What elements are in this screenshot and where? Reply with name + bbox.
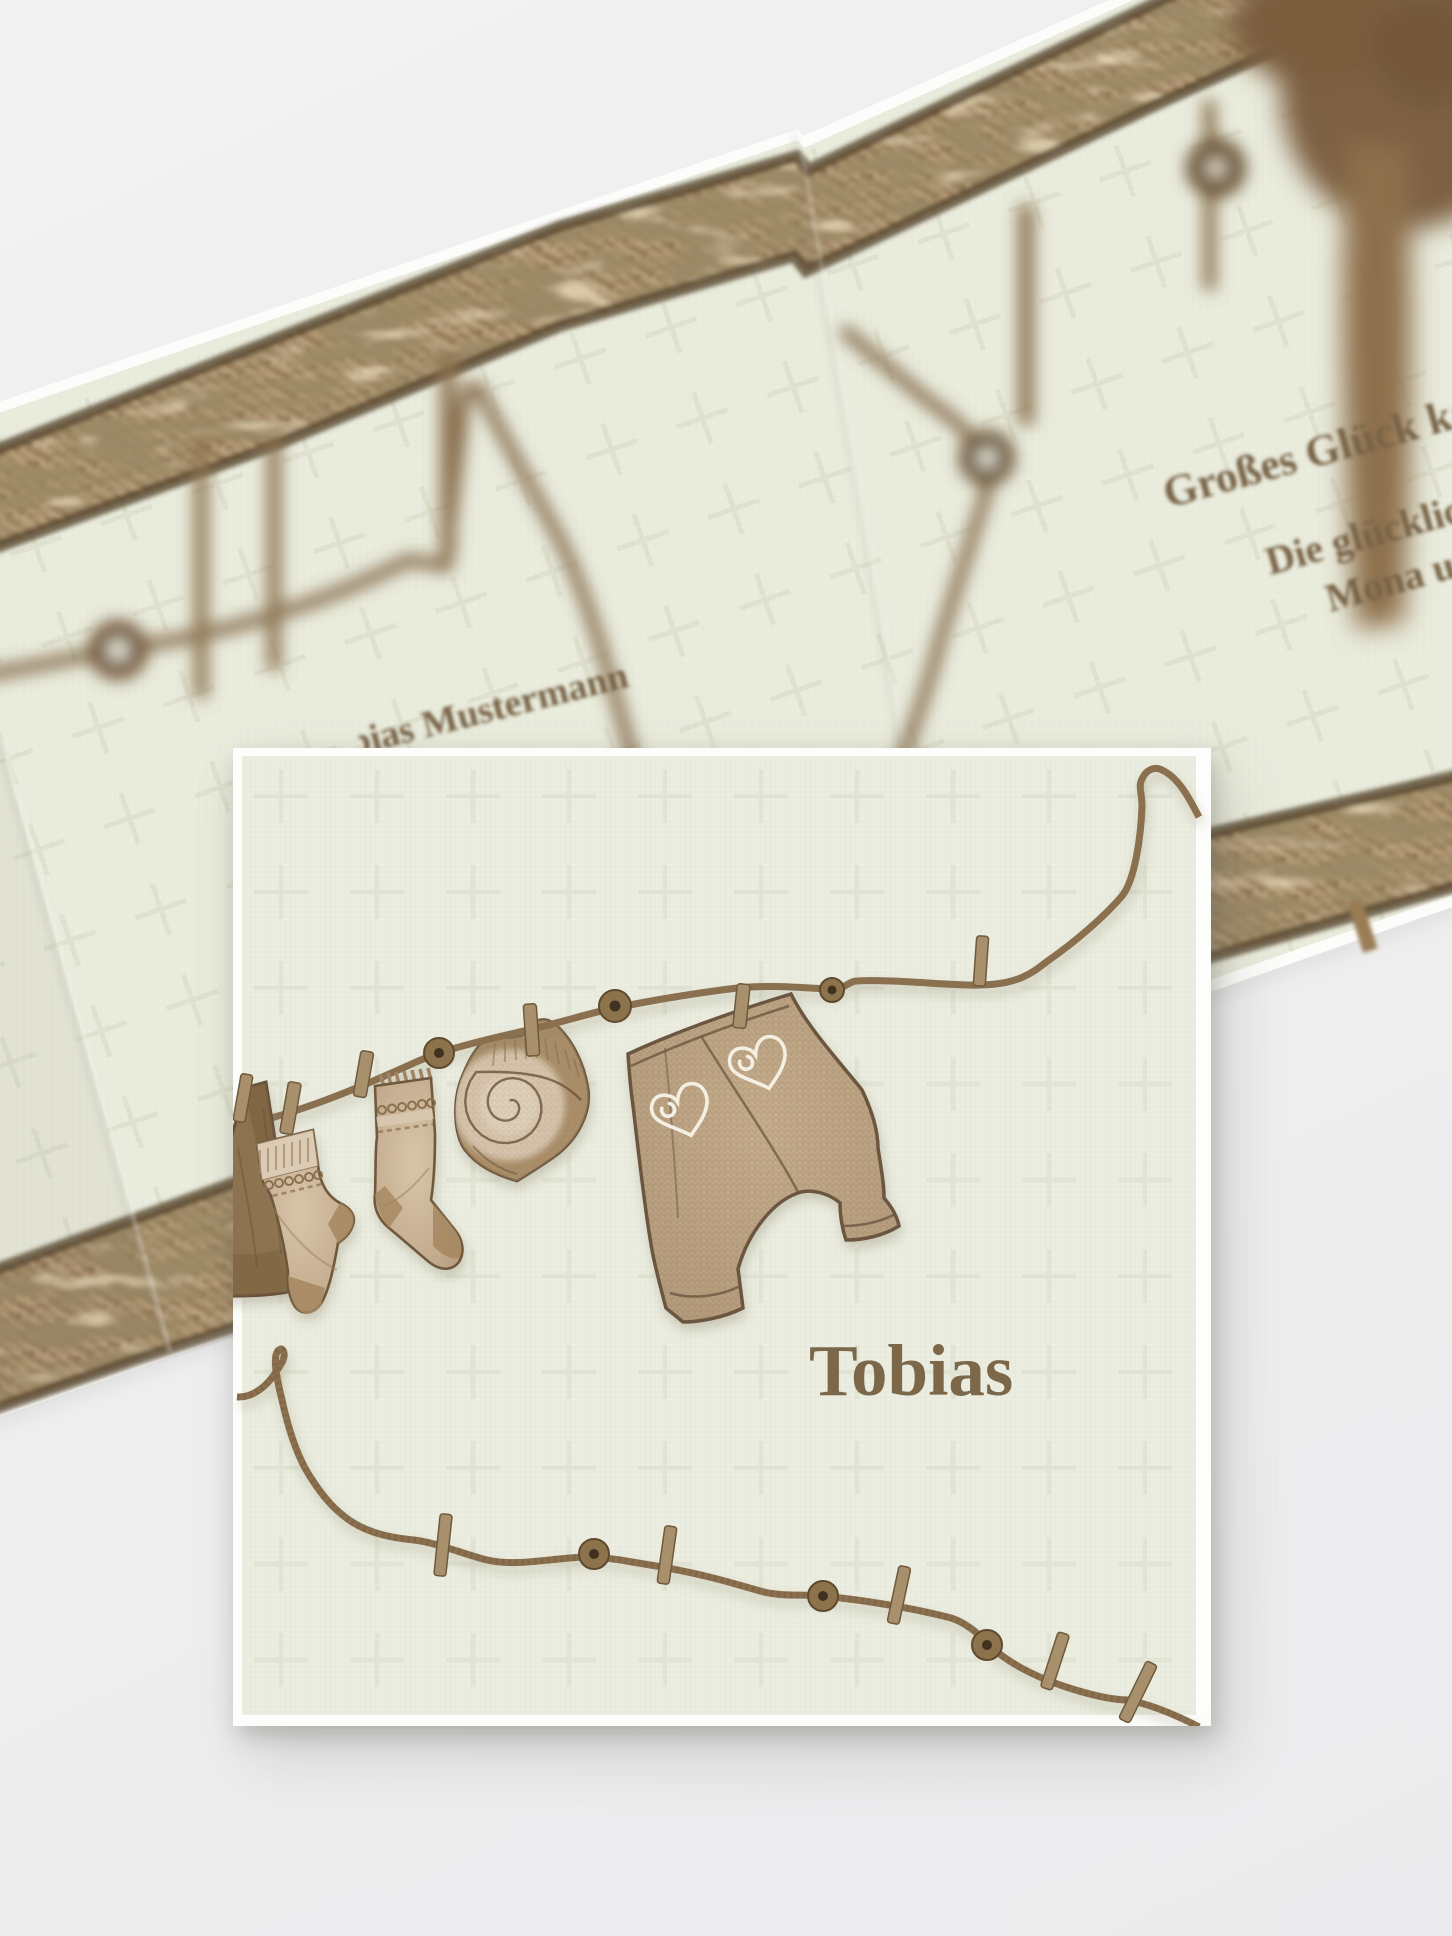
svg-text:Tobias: Tobias: [809, 1330, 1013, 1411]
